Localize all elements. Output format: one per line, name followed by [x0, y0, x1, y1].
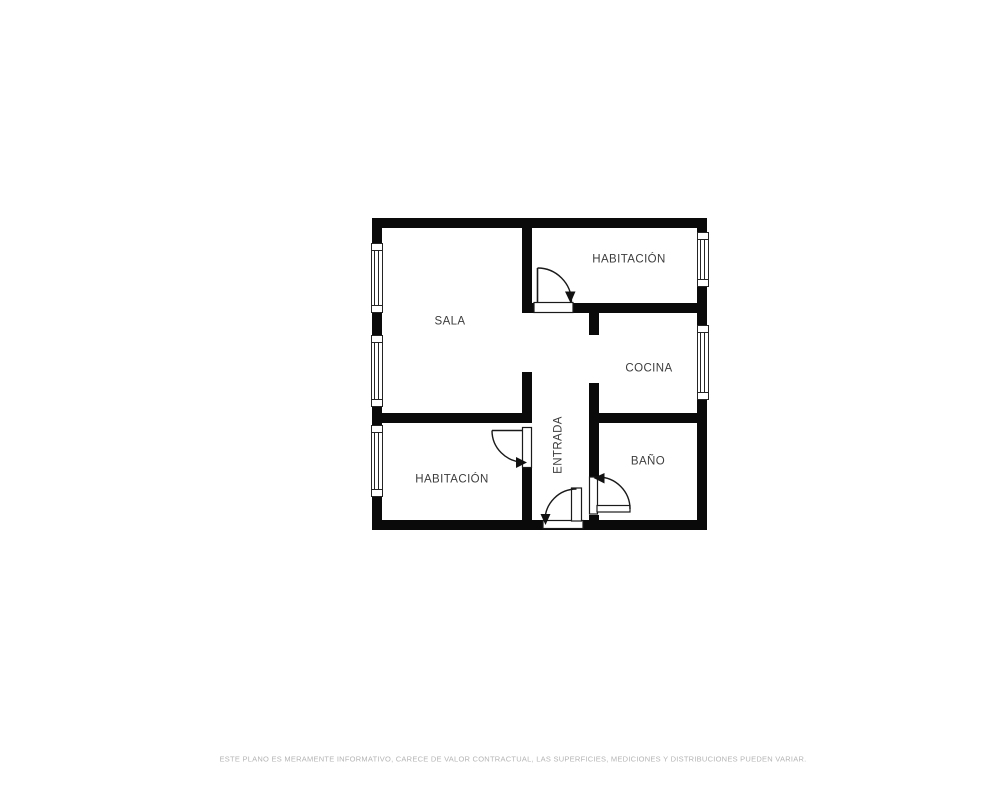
wall-cocina-stub-top: [589, 313, 599, 335]
door-threshold: [534, 303, 573, 313]
room-label-entrada: ENTRADA: [553, 416, 565, 474]
room-label-sala: SALA: [434, 316, 465, 328]
door-entrada: [541, 488, 584, 529]
room-label-bano: BAÑO: [631, 456, 665, 468]
window-right-1: [698, 233, 709, 287]
door-leaf: [597, 506, 630, 513]
window-left-2: [372, 336, 383, 407]
door-habitacion-bottom: [492, 428, 532, 469]
wall-habitacion-bottom-entrada: [522, 467, 532, 530]
wall-entrada-cocina-bano: [589, 383, 599, 477]
window-right-2: [698, 326, 709, 400]
door-bano: [590, 473, 631, 514]
floorplan-drawing: [0, 0, 1000, 800]
window-left-3: [372, 426, 383, 497]
door-habitacion-top: [534, 268, 576, 313]
door-swing-arc: [492, 431, 524, 463]
room-label-habitacion-top: HABITACIÓN: [592, 254, 665, 266]
door-leaf: [572, 488, 582, 521]
wall-sala-habitacion-top: [522, 228, 532, 313]
wall-outer-bottom: [372, 520, 707, 530]
door-swing-arc: [538, 268, 572, 302]
footer-disclaimer: ESTE PLANO ES MERAMENTE INFORMATIVO, CAR…: [220, 755, 807, 764]
door-threshold: [590, 477, 598, 514]
door-threshold: [543, 521, 583, 529]
wall-sala-habitacion-bottom: [372, 413, 532, 423]
window-left-1: [372, 244, 383, 313]
room-label-habitacion-bottom: HABITACIÓN: [415, 474, 488, 486]
door-arrow-icon: [565, 292, 576, 304]
wall-outer-top: [372, 218, 707, 228]
wall-bano-stub-bottom: [589, 515, 599, 530]
room-label-cocina: COCINA: [625, 363, 672, 375]
wall-cocina-bano: [589, 413, 707, 423]
floorplan-page: SALA HABITACIÓN COCINA ENTRADA BAÑO HABI…: [0, 0, 1000, 800]
